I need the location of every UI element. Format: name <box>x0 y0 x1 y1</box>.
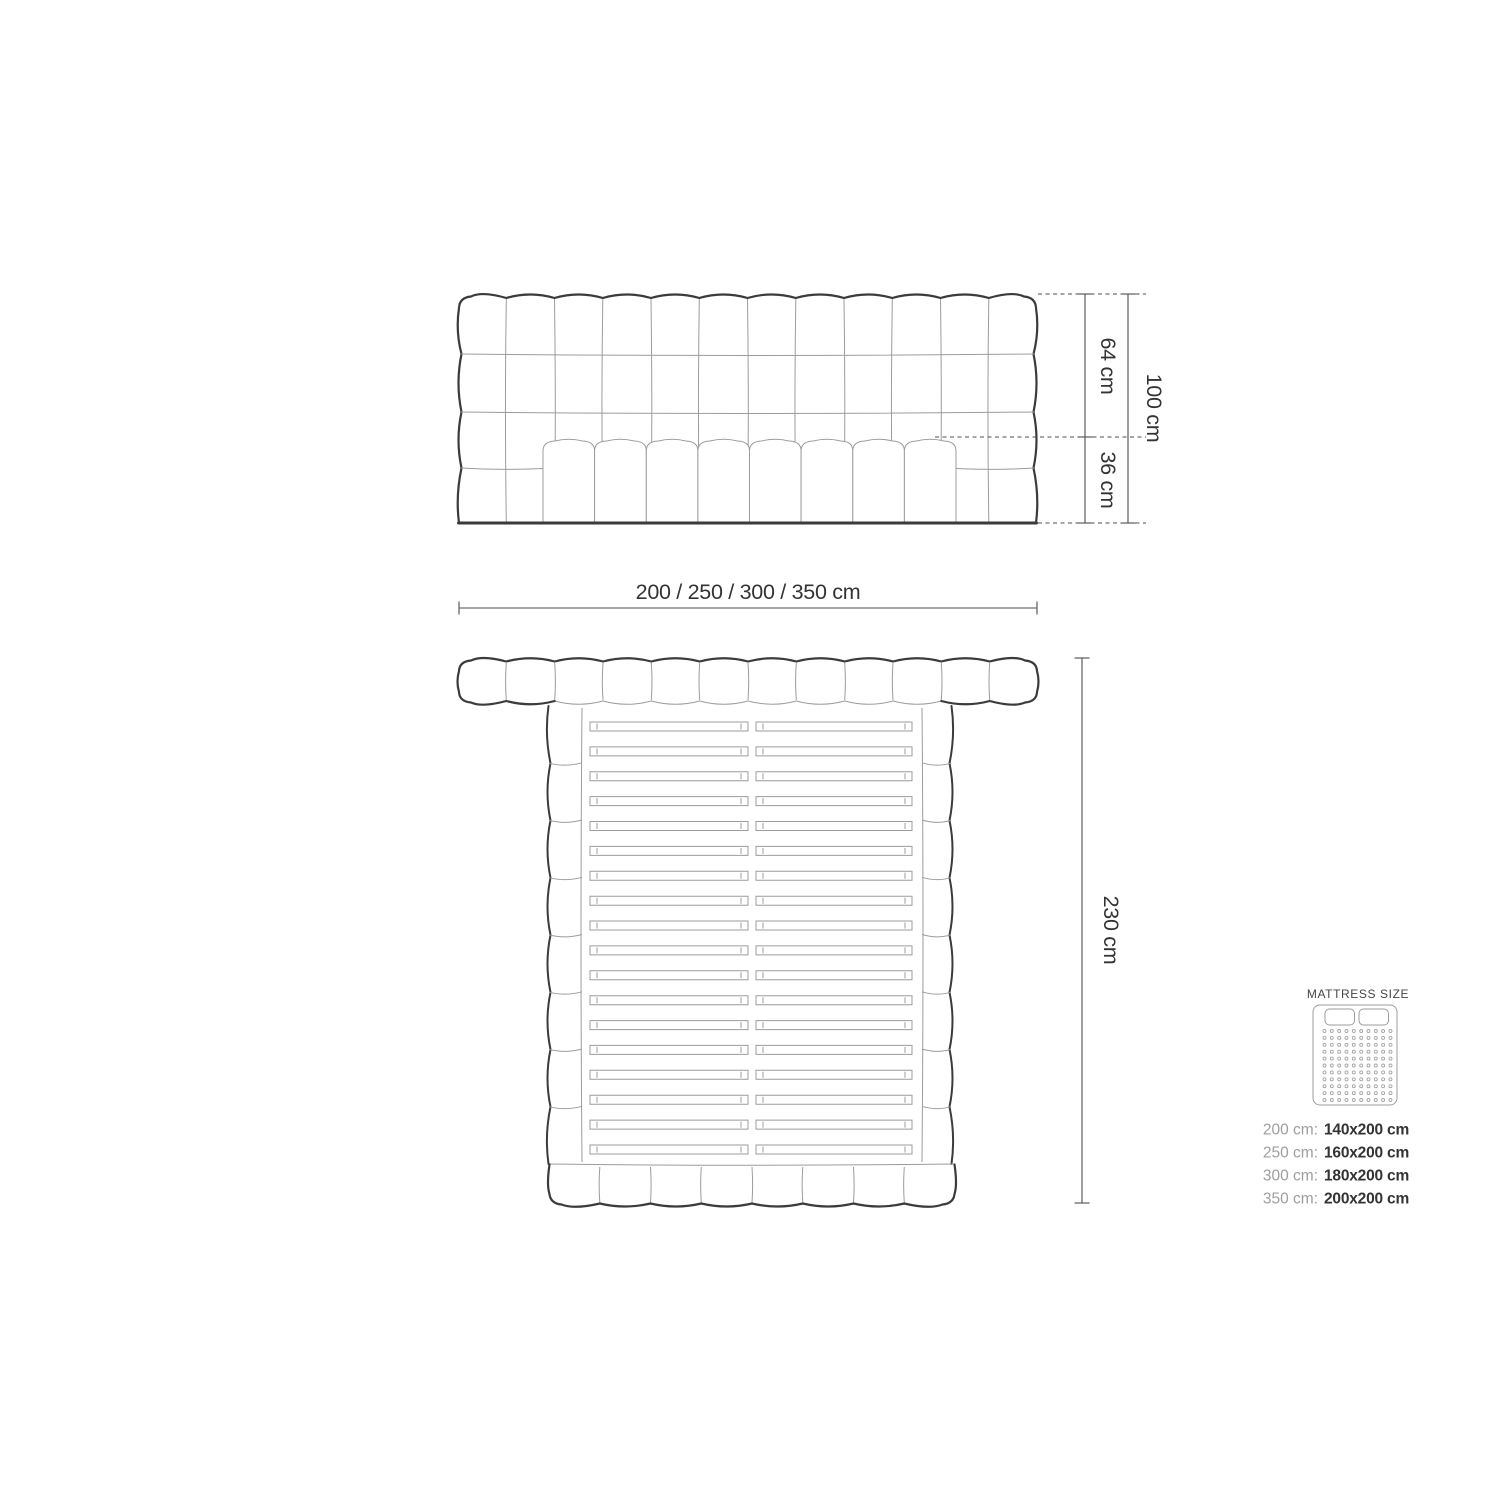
slat-left <box>590 946 748 955</box>
dim-label-width-options: 200 / 250 / 300 / 350 cm <box>636 580 861 604</box>
size-row-label: 250 cm: <box>1263 1145 1318 1162</box>
slat-left <box>590 921 748 930</box>
slat-right <box>756 946 912 955</box>
mattress-channel <box>543 439 595 522</box>
right-rail-segment-divider <box>922 763 950 765</box>
headboard-front-view <box>458 294 1038 523</box>
left-rail-segment-divider <box>550 1106 582 1108</box>
slat-left <box>590 747 748 756</box>
dim-label-total-height: 100 cm <box>1142 374 1166 443</box>
slat-left <box>590 996 748 1005</box>
size-row-value: 180x200 cm <box>1324 1168 1409 1185</box>
left-rail-segment-divider <box>550 763 582 765</box>
slat-right <box>756 971 912 980</box>
left-rail-segment-divider <box>550 1049 582 1051</box>
right-rail-segment-divider <box>922 935 950 937</box>
slat-left <box>590 1021 748 1030</box>
mattress-channel <box>801 439 853 522</box>
footboard-top-edge <box>550 1164 954 1165</box>
slat-right <box>756 1095 912 1104</box>
dim-label-lower-height: 36 cm <box>1096 451 1120 508</box>
size-row-value: 140x200 cm <box>1324 1122 1409 1139</box>
slat-right <box>756 871 912 880</box>
footboard-divider <box>651 1167 652 1203</box>
footboard-divider <box>599 1167 600 1203</box>
slat-right <box>756 822 912 831</box>
right-rail-segment-divider <box>922 1049 950 1051</box>
size-row-label: 350 cm: <box>1263 1191 1318 1208</box>
slat-right <box>756 846 912 855</box>
size-row-value: 160x200 cm <box>1324 1145 1409 1162</box>
size-row-label: 200 cm: <box>1263 1122 1318 1139</box>
mattress-channel <box>853 439 905 522</box>
footboard-divider <box>802 1167 803 1203</box>
dim-label-upper-height: 64 cm <box>1096 337 1120 394</box>
bed-dimensions-diagram: 64 cm 36 cm 100 cm 200 / 250 / 300 / 350… <box>0 0 1500 1500</box>
size-row-label: 300 cm: <box>1263 1168 1318 1185</box>
mattress-panel-title: MATTRESS SIZE <box>1307 987 1409 1001</box>
slat-right <box>756 772 912 781</box>
slat-right <box>756 1021 912 1030</box>
slat-left <box>590 846 748 855</box>
size-row-value: 200x200 cm <box>1324 1191 1409 1208</box>
slat-left <box>590 772 748 781</box>
bed-top-view <box>458 658 1039 1207</box>
slat-right <box>756 1145 912 1154</box>
slat-right <box>756 896 912 905</box>
slat-left <box>590 1095 748 1104</box>
length-dimension-line <box>1075 658 1090 1203</box>
slat-left <box>590 722 748 731</box>
mattress-size-list: 200 cm: 140x200 cm 250 cm: 160x200 cm 30… <box>1263 1122 1409 1208</box>
slat-left <box>590 1145 748 1154</box>
slat-left <box>590 822 748 831</box>
slat-left <box>590 1070 748 1079</box>
slat-left <box>590 1045 748 1054</box>
mattress-channel <box>750 439 802 522</box>
mattress-channel <box>595 439 647 522</box>
slat-right <box>756 797 912 806</box>
slat-right <box>756 747 912 756</box>
left-rail-outer-edge <box>547 706 551 1164</box>
slat-left <box>590 896 748 905</box>
slat-left <box>590 1120 748 1129</box>
footboard-divider <box>752 1167 753 1203</box>
slat-left <box>590 971 748 980</box>
slat-right <box>756 921 912 930</box>
bed-dimensions-page: { "diagram": { "front_view": { "dim_uppe… <box>0 0 1500 1500</box>
left-rail-segment-divider <box>550 820 582 822</box>
slat-left <box>590 871 748 880</box>
right-rail-outer-edge <box>950 706 954 1164</box>
slat-right <box>756 1070 912 1079</box>
slat-right <box>756 1120 912 1129</box>
right-rail-segment-divider <box>922 820 950 822</box>
right-rail-segment-divider <box>922 1106 950 1108</box>
mattress-channel <box>646 439 698 522</box>
slat-left <box>590 797 748 806</box>
left-rail-segment-divider <box>550 877 582 879</box>
left-rail-segment-divider <box>550 992 582 994</box>
footboard-divider <box>701 1167 702 1203</box>
mattress-channel <box>698 439 750 522</box>
right-rail-segment-divider <box>922 877 950 879</box>
footboard-divider <box>904 1167 905 1203</box>
mattress-icon <box>1313 1005 1397 1105</box>
dim-label-length: 230 cm <box>1099 896 1123 965</box>
mattress-channel <box>904 439 956 522</box>
right-rail-segment-divider <box>922 992 950 994</box>
slat-right <box>756 722 912 731</box>
footboard-divider <box>854 1167 855 1203</box>
slat-right <box>756 996 912 1005</box>
slat-right <box>756 1045 912 1054</box>
left-rail-segment-divider <box>550 935 582 937</box>
